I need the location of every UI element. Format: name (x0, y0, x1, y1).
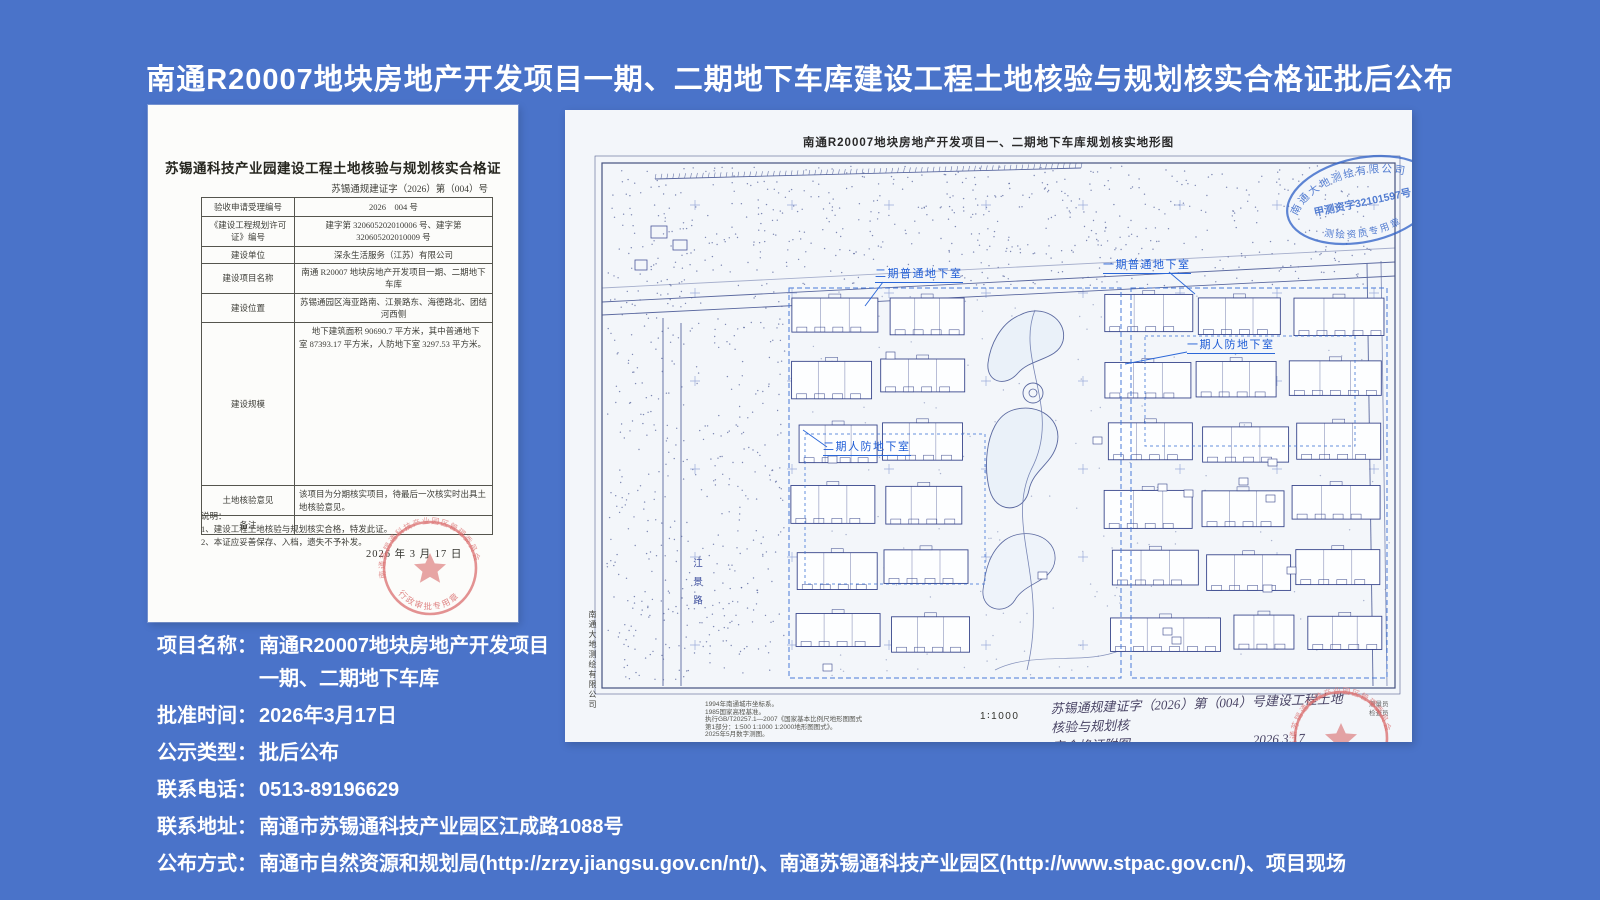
info-row-value: 0513-89196629 (259, 777, 399, 803)
certificate-table-row: 建设项目名称南通 R20007 地块房地产开发项目一期、二期地下车库 (202, 263, 493, 293)
certificate-row-value: 2026 004 号 (295, 198, 493, 217)
certificate-row-value: 深永生活服务（江苏）有限公司 (295, 246, 493, 263)
blue-seal-license-no: 甲测资字32101597号 (1313, 186, 1412, 219)
info-row-label: 公布方式： (157, 851, 259, 877)
certificate-title: 苏锡通科技产业园建设工程土地核验与规划核实合格证 (148, 157, 518, 177)
certificate-table-row: 建设单位深永生活服务（江苏）有限公司 (202, 246, 493, 263)
info-value-line: 南通R20007地块房地产开发项目 (259, 633, 549, 659)
certificate-table-row: 《建设工程规划许可证》编号建字第 320605202010006 号、建字第 3… (202, 217, 493, 247)
announcement-page: 南通R20007地块房地产开发项目一期、二期地下车库建设工程土地核验与规划核实合… (0, 0, 1600, 900)
info-value-line: 2026年3月17日 (259, 703, 397, 729)
certificate-row-label: 建设单位 (202, 246, 295, 263)
info-value-line: 南通市苏锡通科技产业园区江成路1088号 (259, 814, 624, 840)
info-row: 联系电话：0513-89196629 (157, 777, 1346, 803)
certificate-table-row: 验收申请受理编号2026 004 号 (202, 198, 493, 217)
road-label-jiangjing: 江景路 (689, 558, 703, 614)
info-row-value: 2026年3月17日 (259, 703, 397, 729)
info-row-value: 南通市自然资源和规划局(http://zrzy.jiangsu.gov.cn/n… (259, 851, 1346, 877)
page-title: 南通R20007地块房地产开发项目一期、二期地下车库建设工程土地核验与规划核实合… (0, 56, 1600, 98)
info-row: 联系地址：南通市苏锡通科技产业园区江成路1088号 (157, 814, 1346, 840)
certificate-row-value: 地下建筑面积 90690.7 平方米，其中普通地下室 87393.17 平方米，… (295, 323, 493, 486)
certificate-row-label: 《建设工程规划许可证》编号 (202, 217, 295, 247)
seal-star (414, 553, 446, 583)
label-phase2-civil-basement: 二期人防地下室 (823, 438, 911, 456)
info-row: 批准时间：2026年3月17日 (157, 703, 1346, 729)
certificate-table-row: 建设规模地下建筑面积 90690.7 平方米，其中普通地下室 87393.17 … (202, 323, 493, 486)
info-value-line: 0513-89196629 (259, 777, 399, 803)
label-phase2-normal-basement: 二期普通地下室 (875, 265, 963, 283)
info-value-line: 批后公布 (259, 740, 339, 766)
certificate-document: 苏锡通科技产业园建设工程土地核验与规划核实合格证 苏锡通规建证字（2026）第（… (148, 105, 518, 622)
label-phase1-civil-basement: 一期人防地下室 (1187, 336, 1275, 354)
certificate-row-label: 建设规模 (202, 323, 295, 486)
certificate-row-value: 建字第 320605202010006 号、建字第 32060520201000… (295, 217, 493, 247)
info-row: 项目名称：南通R20007地块房地产开发项目一期、二期地下车库 (157, 633, 1346, 692)
certificate-row-label: 建设位置 (202, 293, 295, 323)
label-phase1-normal-basement: 一期普通地下室 (1103, 256, 1191, 274)
info-row-value: 南通R20007地块房地产开发项目一期、二期地下车库 (259, 633, 549, 692)
project-info-block: 项目名称：南通R20007地块房地产开发项目一期、二期地下车库批准时间：2026… (157, 633, 1346, 888)
certificate-table: 验收申请受理编号2026 004 号《建设工程规划许可证》编号建字第 32060… (201, 197, 493, 535)
info-row-label: 项目名称： (157, 633, 259, 692)
info-row-label: 联系地址： (157, 814, 259, 840)
info-value-line: 南通市自然资源和规划局(http://zrzy.jiangsu.gov.cn/n… (259, 851, 1346, 877)
certificate-row-value: 苏锡通园区海亚路南、江景路东、海德路北、团结河西侧 (295, 293, 493, 323)
certificate-row-value: 南通 R20007 地块房地产开发项目一期、二期地下车库 (295, 263, 493, 293)
certificate-doc-number: 苏锡通规建证字（2026）第（004）号 (148, 181, 518, 195)
certificate-row-label: 验收申请受理编号 (202, 198, 295, 217)
info-row-value: 批后公布 (259, 740, 339, 766)
info-row: 公示类型：批后公布 (157, 740, 1346, 766)
certificate-row-label: 建设项目名称 (202, 263, 295, 293)
info-row-label: 公示类型： (157, 740, 259, 766)
info-row-label: 批准时间： (157, 703, 259, 729)
info-value-line: 一期、二期地下车库 (259, 666, 549, 692)
official-red-seal: 南通苏锡通科技产业园区管理委员会 行政审批专用章 (370, 508, 490, 628)
certificate-table-row: 建设位置苏锡通园区海亚路南、江景路东、海德路北、团结河西侧 (202, 293, 493, 323)
info-row-value: 南通市苏锡通科技产业园区江成路1088号 (259, 814, 624, 840)
info-row: 公布方式：南通市自然资源和规划局(http://zrzy.jiangsu.gov… (157, 851, 1346, 877)
info-row-label: 联系电话： (157, 777, 259, 803)
